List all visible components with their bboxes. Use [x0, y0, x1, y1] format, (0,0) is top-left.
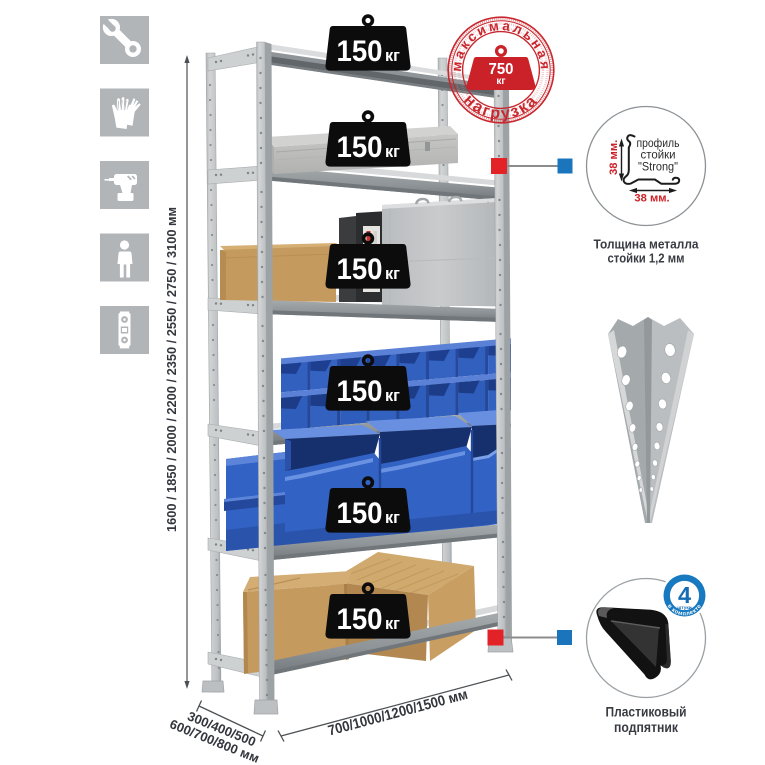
svg-text:150: 150: [337, 253, 383, 286]
svg-text:38 мм.: 38 мм.: [608, 140, 620, 175]
svg-text:кг: кг: [496, 76, 505, 87]
svg-text:кг: кг: [385, 143, 400, 161]
svg-text:700/1000/1200/1500 мм: 700/1000/1200/1500 мм: [326, 687, 469, 740]
svg-text:4: 4: [678, 582, 691, 608]
svg-text:стойки: стойки: [641, 150, 676, 162]
svg-text:150: 150: [337, 131, 383, 164]
svg-text:38 мм.: 38 мм.: [634, 193, 669, 205]
svg-text:кг: кг: [385, 387, 400, 405]
svg-text:Пластиковый: Пластиковый: [606, 705, 687, 720]
svg-text:кг: кг: [385, 509, 400, 527]
svg-text:1600 / 1850 / 2000 / 2200 / 23: 1600 / 1850 / 2000 / 2200 / 2350 / 2550 …: [164, 207, 179, 532]
svg-text:150: 150: [337, 35, 383, 68]
svg-text:стойки 1,2 мм: стойки 1,2 мм: [608, 251, 685, 266]
svg-text:подпятник: подпятник: [614, 720, 678, 735]
svg-text:кг: кг: [385, 47, 400, 65]
svg-text:150: 150: [337, 603, 383, 636]
svg-text:кг: кг: [385, 615, 400, 633]
svg-text:"Strong": "Strong": [638, 162, 678, 174]
svg-text:кг: кг: [385, 265, 400, 283]
svg-text:Толщина металла: Толщина металла: [594, 237, 700, 252]
svg-text:150: 150: [337, 497, 383, 530]
svg-text:штуки: штуки: [677, 606, 692, 611]
svg-text:профиль: профиль: [637, 138, 680, 150]
svg-text:150: 150: [337, 375, 383, 408]
